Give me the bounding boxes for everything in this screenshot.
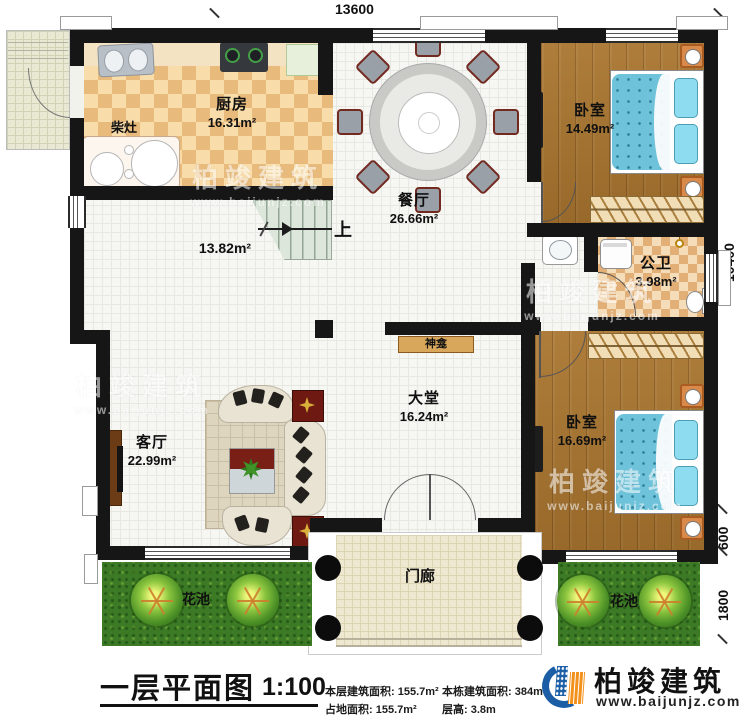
clock-icon xyxy=(685,521,701,537)
room-area: 22.99m² xyxy=(102,453,202,469)
wood-stove-pot xyxy=(124,145,134,155)
footer-bar: 一层平面图 1:100 本层建筑面积: 155.7m² 占地面积: 155.7m… xyxy=(0,655,750,721)
wall-niche-stub xyxy=(521,263,535,322)
gas-stove xyxy=(220,42,268,72)
exterior-step xyxy=(84,554,98,584)
terrace-step-line xyxy=(8,42,68,43)
door-opening-kitchen xyxy=(70,66,84,118)
room-area: 14.49m² xyxy=(540,121,640,137)
room-label-living: 客厅 22.99m² xyxy=(102,434,202,469)
wall-corner-pillar xyxy=(315,320,333,338)
door-leaf xyxy=(539,331,541,378)
room-area: 16.31m² xyxy=(182,115,282,131)
terrace-step-line xyxy=(8,50,68,51)
room-label-bedroom-bottom: 卧室 16.69m² xyxy=(532,414,632,449)
porch-column xyxy=(517,555,543,581)
room-name: 卧室 xyxy=(532,414,632,433)
room-area: 16.69m² xyxy=(532,433,632,449)
stat-label: 本栋建筑面积: xyxy=(442,686,512,698)
washbasin-counter xyxy=(542,234,578,265)
wall-dining-bedroom xyxy=(527,28,541,182)
porch-floor xyxy=(336,535,522,647)
wood-stove-pot xyxy=(124,169,134,179)
plan-title: 一层平面图 xyxy=(100,665,255,707)
wall-hall-bottom-left xyxy=(310,518,382,532)
wall-bathroom-bottom xyxy=(588,317,718,331)
wall-step-stub xyxy=(70,330,110,344)
porch-step-line xyxy=(336,645,522,647)
washbasin xyxy=(549,240,572,260)
dimension-tick xyxy=(717,504,728,515)
wood-stove-burner-large xyxy=(131,140,178,187)
window-bathroom xyxy=(704,254,718,302)
wood-stove-counter xyxy=(82,136,180,190)
wall-bathroom-left xyxy=(584,237,598,272)
toilet-bowl xyxy=(686,291,704,313)
stat-land-area: 占地面积: 155.7m² xyxy=(325,701,417,717)
brand-url: www.baijunjz.com xyxy=(596,693,741,709)
porch-column xyxy=(315,555,341,581)
room-area: 16.24m² xyxy=(374,409,474,425)
dining-chair xyxy=(337,109,363,135)
clock-icon xyxy=(685,181,701,197)
dining-table xyxy=(370,64,486,180)
room-name: 客厅 xyxy=(102,434,202,453)
window-sill xyxy=(676,16,728,30)
sink-basin xyxy=(103,49,124,73)
bed-pillow xyxy=(674,124,698,164)
dimension-top-width: 13600 xyxy=(335,1,374,17)
window-sill xyxy=(718,250,731,306)
porch-column xyxy=(315,615,341,641)
room-area: 3.98m² xyxy=(606,274,706,290)
terrace-step-line xyxy=(8,58,68,59)
label-wood-stove: 柴灶 xyxy=(84,120,164,136)
dimension-tick xyxy=(717,634,728,645)
stat-value: 3.8m xyxy=(471,704,496,716)
floor-plan-canvas: 13600 10400 600 1800 上 xyxy=(0,0,750,721)
sink-basin xyxy=(127,48,148,72)
wall-kitchen-bottom xyxy=(70,186,333,200)
stat-floor-area: 本层建筑面积: 155.7m² xyxy=(325,683,439,699)
wall-kitchen-dining-stub xyxy=(318,28,333,95)
clock-icon xyxy=(685,49,701,65)
stair-direction-arrow xyxy=(282,222,293,236)
logo-building-blue xyxy=(555,666,568,696)
door-leaf-entry xyxy=(429,474,431,520)
wood-stove-burner-small xyxy=(90,152,124,186)
shrine-cabinet: 神龛 xyxy=(398,336,474,353)
window-bedroom-top xyxy=(606,28,678,43)
pendant-light xyxy=(675,239,684,248)
stat-label: 本层建筑面积: xyxy=(325,686,395,698)
label-flowerbed-right: 花池 xyxy=(574,593,674,611)
porch-step-line xyxy=(336,638,522,640)
dining-chair xyxy=(493,109,519,135)
stat-value: 155.7m² xyxy=(398,686,439,698)
wardrobe xyxy=(588,333,704,359)
kitchen-sink xyxy=(97,43,155,78)
room-label-bedroom-top: 卧室 14.49m² xyxy=(540,102,640,137)
nightstand xyxy=(680,384,704,408)
label-stair-hall-area: 13.82m² xyxy=(175,240,275,258)
stat-value: 155.7m² xyxy=(376,704,417,716)
bed-pillow xyxy=(674,78,698,118)
stat-building-area: 本栋建筑面积: 384m² xyxy=(442,683,547,699)
bed-sheet-fold xyxy=(656,414,672,510)
room-label-bathroom: 公卫 3.98m² xyxy=(606,255,706,290)
room-name: 餐厅 xyxy=(364,192,464,211)
stat-floor-height: 层高: 3.8m xyxy=(442,701,496,717)
wardrobe xyxy=(590,196,704,223)
porch-column xyxy=(517,615,543,641)
window-sill xyxy=(60,16,112,30)
room-label-dining: 餐厅 26.66m² xyxy=(364,192,464,227)
stat-label: 占地面积: xyxy=(325,704,373,716)
clock-icon xyxy=(685,389,701,405)
label-flowerbed-left: 花池 xyxy=(146,591,246,609)
plan-scale: 1:100 xyxy=(262,673,326,702)
stove-burner xyxy=(225,48,240,63)
stat-label: 层高: xyxy=(442,704,468,716)
wall-hall-bottom-right xyxy=(478,518,521,532)
stove-burner xyxy=(248,48,263,63)
room-label-hall: 大堂 16.24m² xyxy=(374,390,474,425)
nightstand xyxy=(680,44,704,68)
nightstand xyxy=(680,516,704,540)
stairs-up-label: 上 xyxy=(334,216,352,242)
bed-pillow xyxy=(674,420,698,460)
room-name: 厨房 xyxy=(182,96,282,115)
room-name: 大堂 xyxy=(374,390,474,409)
window-living xyxy=(145,546,290,560)
door-leaf xyxy=(541,182,543,223)
bed-pillow xyxy=(674,466,698,506)
washer-panel xyxy=(603,243,627,247)
title-underline xyxy=(100,704,318,707)
label-porch: 门廊 xyxy=(370,568,470,587)
window-sill xyxy=(82,486,98,516)
room-name: 卧室 xyxy=(540,102,640,121)
dimension-tick xyxy=(209,8,220,19)
dimension-right-flowerbed: 1800 xyxy=(715,585,731,621)
sofa-pillow xyxy=(251,388,265,404)
brand-logo-icon xyxy=(540,658,588,716)
wall-hall-top xyxy=(385,322,541,335)
window-left-hall xyxy=(68,196,86,228)
room-area: 26.66m² xyxy=(364,211,464,227)
stair-direction-line xyxy=(258,228,332,230)
wall-bedroom-top-bottom xyxy=(527,223,718,237)
room-label-kitchen: 厨房 16.31m² xyxy=(182,96,282,131)
logo-building-orange xyxy=(568,672,585,704)
dining-table-hub xyxy=(418,112,440,134)
window-dining xyxy=(373,28,485,43)
room-name: 公卫 xyxy=(606,255,706,274)
window-sill xyxy=(420,16,558,30)
bed-sheet-fold xyxy=(654,74,670,170)
